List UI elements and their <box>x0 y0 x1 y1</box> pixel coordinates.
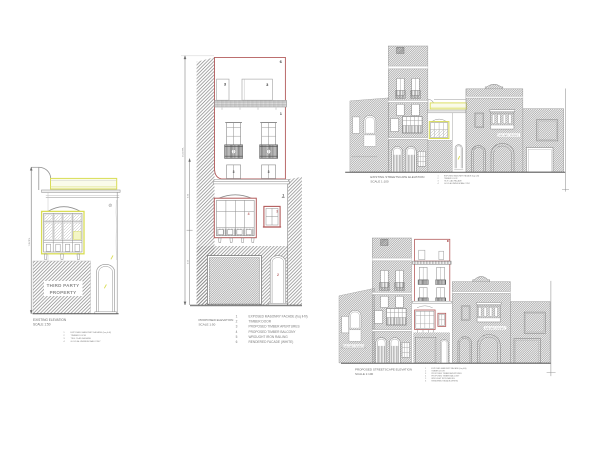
svg-text:WROUGHT IRON RAILING: WROUGHT IRON RAILING <box>249 335 289 339</box>
svg-text:6: 6 <box>425 381 426 383</box>
svg-text:PROPOSED TIMBER BALCONY: PROPOSED TIMBER BALCONY <box>249 330 297 334</box>
svg-text:5: 5 <box>236 335 238 339</box>
svg-text:16.30 TPL: 16.30 TPL <box>183 146 185 156</box>
svg-text:EXISTING STREETSCAPE ELEVATION: EXISTING STREETSCAPE ELEVATION <box>370 175 424 179</box>
svg-text:EXPOSED MASONRY FACADE (fuq il: EXPOSED MASONRY FACADE (fuq il-fil) <box>431 367 466 370</box>
svg-text:PROPERTY: PROPERTY <box>50 290 77 295</box>
svg-text:GOLD ALUMINIUM BALCONY: GOLD ALUMINIUM BALCONY <box>71 340 102 343</box>
svg-text:EXPOSED MASONRY FACADE (fuq il: EXPOSED MASONRY FACADE (fuq il-fil) <box>444 174 479 177</box>
svg-text:TIMBER DOOR: TIMBER DOOR <box>71 335 87 337</box>
svg-text:1: 1 <box>236 314 238 318</box>
svg-text:PROPOSED TIMBER BALCONY: PROPOSED TIMBER BALCONY <box>431 374 460 377</box>
svg-text:SCALE 1:50: SCALE 1:50 <box>33 323 51 327</box>
svg-text:THIRD PARTY PROPERTY: THIRD PARTY PROPERTY <box>343 345 365 348</box>
svg-text:PROPOSED ELEVATION: PROPOSED ELEVATION <box>199 318 234 322</box>
svg-text:EXPOSED MASONRY FACADE (fuq il: EXPOSED MASONRY FACADE (fuq il-fil) <box>71 331 112 334</box>
svg-text:3: 3 <box>233 170 235 174</box>
svg-text:3: 3 <box>268 170 270 174</box>
svg-text:GOLD ALUMINIUM BALCONY: GOLD ALUMINIUM BALCONY <box>444 182 471 185</box>
svg-text:THIRD PARTY PROPERTY: THIRD PARTY PROPERTY <box>498 134 520 137</box>
svg-text:SCALE 1:100: SCALE 1:100 <box>355 372 374 376</box>
svg-text:3: 3 <box>276 209 278 213</box>
svg-text:4: 4 <box>236 330 238 334</box>
svg-text:3: 3 <box>236 325 238 329</box>
svg-text:1: 1 <box>280 112 282 116</box>
svg-text:TILE CLAD FACADE: TILE CLAD FACADE <box>71 337 92 340</box>
svg-text:7.35 TPL: 7.35 TPL <box>29 237 31 246</box>
svg-text:THIRD PARTY: THIRD PARTY <box>47 283 80 288</box>
svg-text:2: 2 <box>236 320 238 324</box>
svg-text:PROPOSED TIMBER APERTURES: PROPOSED TIMBER APERTURES <box>431 372 462 375</box>
svg-text:WROUGHT IRON RAILING: WROUGHT IRON RAILING <box>431 377 455 380</box>
svg-text:4: 4 <box>248 212 250 216</box>
svg-text:EXISTING ELEVATION: EXISTING ELEVATION <box>33 318 67 322</box>
svg-text:RENDERED FACADE (WHITE): RENDERED FACADE (WHITE) <box>249 340 294 344</box>
svg-text:TILE CLAD FACADE: TILE CLAD FACADE <box>444 180 462 183</box>
svg-text:RENDERED FACADE (WHITE): RENDERED FACADE (WHITE) <box>431 380 458 383</box>
svg-text:1: 1 <box>282 193 284 197</box>
svg-text:4: 4 <box>437 183 438 185</box>
svg-text:TIMBER DOOR: TIMBER DOOR <box>249 320 272 324</box>
svg-text:PROPOSED TIMBER APERTURES: PROPOSED TIMBER APERTURES <box>249 325 300 329</box>
svg-text:2: 2 <box>277 273 279 277</box>
svg-text:PROPOSED STREETSCAPE ELEVATION: PROPOSED STREETSCAPE ELEVATION <box>355 368 412 372</box>
svg-text:EXPOSED MASONRY FACADE (fuq il: EXPOSED MASONRY FACADE (fuq il-fil) <box>249 314 308 318</box>
svg-text:6: 6 <box>236 340 238 344</box>
svg-text:THIRD PARTY PROPERTY: THIRD PARTY PROPERTY <box>485 327 507 330</box>
svg-text:SCALE 1:50: SCALE 1:50 <box>199 323 216 327</box>
svg-text:SCALE 1:100: SCALE 1:100 <box>370 179 389 183</box>
